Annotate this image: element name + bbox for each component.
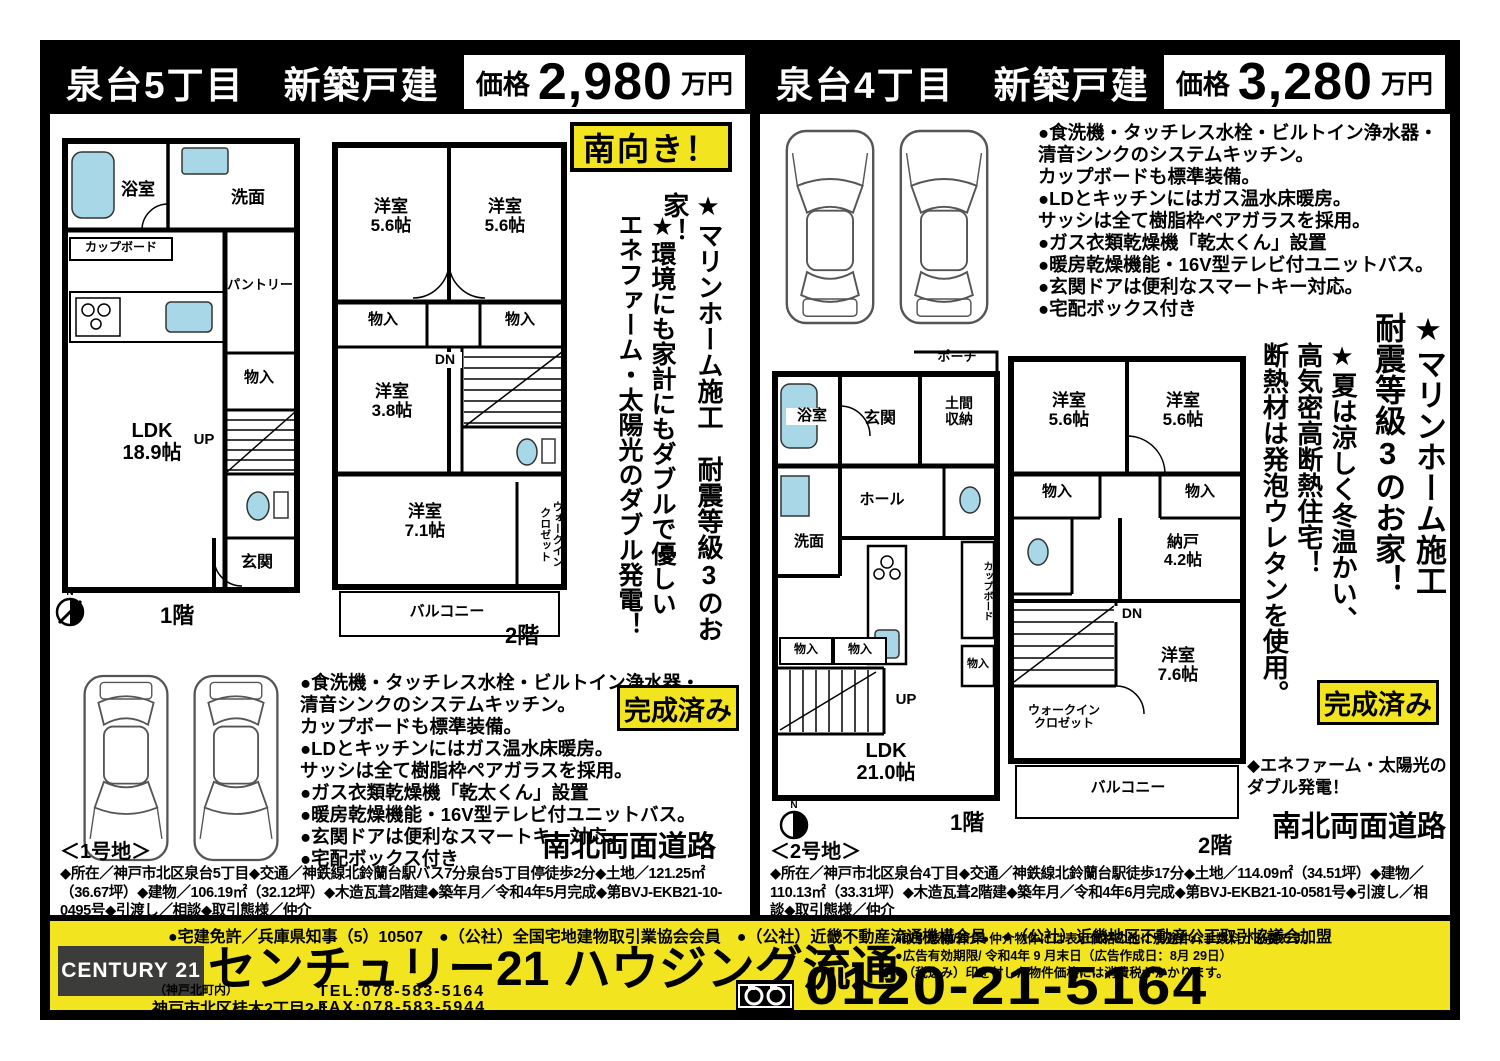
legal-note-line: ●取引態様/仲介●仲介物件には表示価格の他に別途仲介手数料が必要です。 [895,931,1315,948]
room-nando: 納戸 4.2帖 [1136,534,1230,570]
lot2-energy-note: ◆エネファーム・太陽光の ダブル発電！ [1247,755,1447,799]
price-label: 価格 [1176,63,1230,102]
room-cupboard: カップボード [72,241,170,254]
room-youshitsu-2: 洋室 5.6帖 [458,197,552,235]
price-value: 2,980 [538,56,673,108]
balcony: バルコニー [1070,780,1186,797]
closet-1: 物入 [1020,484,1094,501]
room-ldk: LDK 18.9帖 [92,420,212,465]
svg-text:N: N [790,800,797,811]
lot1-1f-caption: 1階 [160,598,194,630]
closet-2: 物入 [480,312,560,329]
flyer: 泉台5丁目 新築戸建 価格 2,980 万円 [40,40,1460,1020]
room-youshitsu-2: 洋室 5.6帖 [1136,391,1230,429]
lot2-title: 泉台4丁目 新築戸建 [760,55,1150,109]
feature-line: ●ガス衣類乾燥機「乾太くん」設置 [1038,232,1438,254]
stairs-up: UP [888,692,924,709]
feature-line: ●暖房乾燥機能・16V型テレビ付ユニットバス。 [1038,254,1438,276]
feature-line: サッシは全て樹脂枠ペアガラスを採用。 [1038,210,1438,232]
lot2-floorplan-1f: ポーチ 浴室 玄関 土間 収納 ホール 洗面 カップボード 物入 物入 物入 U… [772,346,1000,801]
lot1-floorplan-1f: 浴室 洗面 カップボード パントリー 物入 UP LDK 18.9帖 玄関 [62,138,300,593]
lot1-header: 泉台5丁目 新築戸建 価格 2,980 万円 [50,50,750,114]
room-youshitsu-1: 洋室 5.6帖 [344,197,438,235]
lot1-number: ＜1号地＞ [60,835,740,864]
closet-c: 物入 [834,643,886,656]
lot1-price-box: 価格 2,980 万円 [464,55,745,109]
completed-badge: 完成済み [1317,680,1439,725]
feature-line: ●LDとキッチンにはガス温水床暖房。 [300,738,700,760]
room-entrance: 玄関 [846,410,914,428]
company-address: 神戸市北区桂木2丁目2-1 [152,995,328,1019]
price-unit: 万円 [681,64,733,101]
room-hall: ホール [846,492,918,509]
lot1-catch-copy-b: ★環境にも家計にもダブルで優しい エネファーム・太陽光のダブル発電！ [598,212,678,652]
room-pantry: パントリー [222,278,298,293]
price-unit: 万円 [1381,64,1433,101]
freedial-number: 0120-21-5164 [805,959,1209,1013]
room-wash: 洗面 [780,534,838,551]
lot1-floorplan-2f: 洋室 5.6帖 洋室 5.6帖 物入 物入 洋室 3.8帖 DN 洋室 7.1帖… [332,142,567,642]
feature-line: ●玄関ドアは便利なスマートキー対応。 [1038,276,1438,298]
feature-line: 清音シンクのシステムキッチン。 [1038,144,1438,166]
porch: ポーチ [922,350,992,365]
price-value: 3,280 [1238,56,1373,108]
panel-lot1: 泉台5丁目 新築戸建 価格 2,980 万円 [50,50,750,915]
lot2-catch-copy-a: ★マリンホーム施工 耐震等級3のお家！ [1366,312,1448,692]
room-youshitsu-3: 洋室 3.8帖 [344,382,440,420]
lot2-price-box: 価格 3,280 万円 [1164,55,1445,109]
parking-cars [782,124,992,330]
lot2-floorplan-2f: 洋室 5.6帖 洋室 5.6帖 物入 物入 納戸 4.2帖 DN 洋室 7.6帖… [1008,356,1246,826]
lot1-title: 泉台5丁目 新築戸建 [50,55,440,109]
closet-1: 物入 [344,312,422,329]
svg-text:N: N [66,587,73,598]
south-facing-badge: 南向き！ [570,122,732,172]
feature-line: カップボードも標準装備。 [1038,166,1438,188]
lot1-spec-text: ◆所在／神戸市北区泉台5丁目◆交通／神鉄線北鈴蘭台駅バス7分泉台5丁目停徒歩2分… [60,865,740,915]
feature-line: ●LDとキッチンにはガス温水床暖房。 [1038,188,1438,210]
feature-line: ●食洗機・タッチレス水栓・ビルトイン浄水器・ [1038,122,1438,144]
feature-line: ●ガス衣類乾燥機「乾太くん」設置 [300,782,700,804]
stairs-dn: DN [1114,606,1150,622]
room-bath: 浴室 [108,180,168,199]
completed-badge: 完成済み [617,685,739,731]
compass-icon: N [52,585,88,634]
panel-lot2: 泉台4丁目 新築戸建 価格 3,280 万円 [750,50,1450,915]
lot2-details: ＜2号地＞ ◆所在／神戸市北区泉台4丁目◆交通／神鉄線北鈴蘭台駅徒歩17分◆土地… [760,833,1450,915]
room-entrance: 玄関 [224,554,290,572]
room-ldk: LDK 21.0帖 [826,740,946,785]
feature-line: サッシは全て樹脂枠ペアガラスを採用。 [300,760,700,782]
car-icon [782,124,878,330]
room-youshitsu-4: 洋室 7.1帖 [370,502,480,540]
closet-a: 物入 [962,658,994,670]
price-label: 価格 [476,63,530,102]
freedial-icon [735,979,795,1018]
balcony: バルコニー [392,604,502,621]
lot2-number: ＜2号地＞ [770,835,1440,864]
lot1-details: ＜1号地＞ ◆所在／神戸市北区泉台5丁目◆交通／神鉄線北鈴蘭台駅バス7分泉台5丁… [50,833,750,915]
cupboard: カップボード [966,548,992,634]
lot1-catch-copy-a: ★マリンホーム施工 耐震等級3のお家！ [686,192,726,662]
lot2-header: 泉台4丁目 新築戸建 価格 3,280 万円 [760,50,1450,114]
room-bath: 浴室 [786,408,838,425]
property-panels: 泉台5丁目 新築戸建 価格 2,980 万円 [50,50,1450,915]
lot2-feature-list: ●食洗機・タッチレス水栓・ビルトイン浄水器・ 清音シンクのシステムキッチン。 カ… [1038,122,1438,320]
closet-b: 物入 [780,643,832,656]
stairs-dn: DN [428,352,462,368]
closet-2: 物入 [1162,484,1238,501]
room-wash: 洗面 [212,188,284,207]
car-icon [896,124,992,330]
room-youshitsu-3: 洋室 7.6帖 [1126,646,1230,684]
agency-footer: ●宅建免許／兵庫県知事（5）10507 ●（公社）全国宅地建物取引業協会会員 ●… [50,915,1450,1010]
walkin-closet: ウォークイン クロゼット [1014,704,1114,731]
room-closet: 物入 [228,370,290,387]
room-youshitsu-1: 洋室 5.6帖 [1022,391,1116,429]
room-doma: 土間 収納 [926,396,992,427]
lot1-2f-caption: 2階 [505,618,539,650]
walkin-closet: ウォークイン クロゼット [519,484,563,584]
company-name: センチュリー21 ハウジング流通 [208,929,899,999]
fax-number: FAX:078-583-5944 [318,999,486,1017]
lot2-spec-text: ◆所在／神戸市北区泉台4丁目◆交通／神鉄線北鈴蘭台駅徒歩17分◆土地／114.0… [770,865,1440,915]
